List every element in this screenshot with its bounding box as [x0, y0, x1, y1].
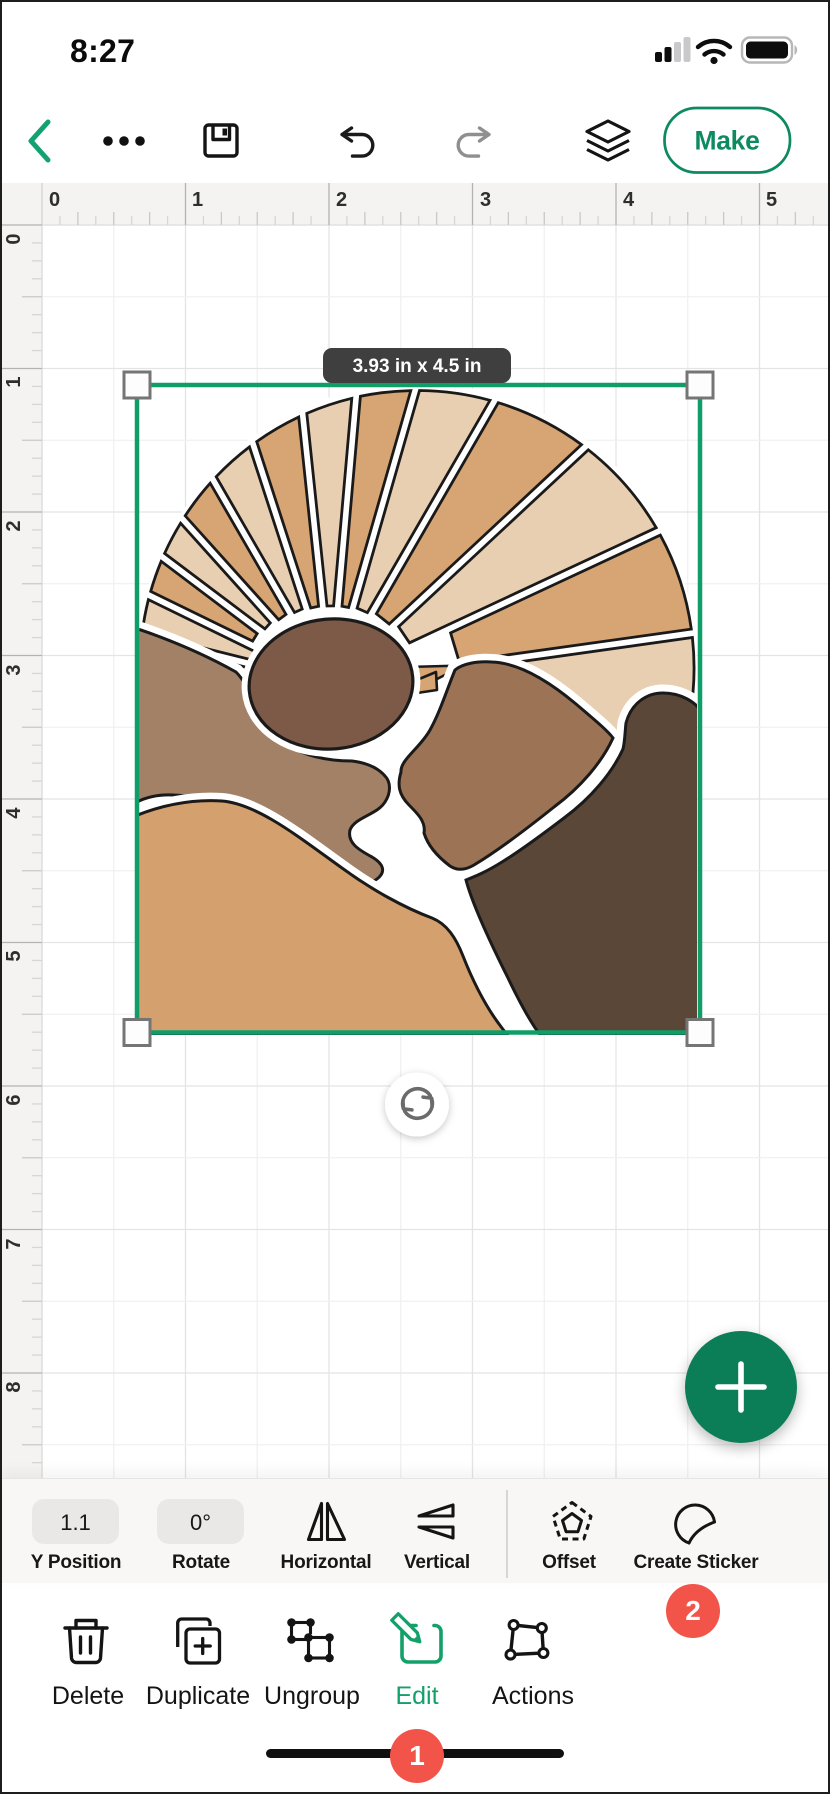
- svg-text:4: 4: [3, 807, 25, 819]
- svg-text:5: 5: [766, 189, 777, 211]
- svg-text:3: 3: [3, 664, 25, 675]
- svg-text:7: 7: [3, 1238, 25, 1249]
- svg-text:5: 5: [3, 950, 25, 961]
- svg-text:Make: Make: [694, 126, 759, 156]
- svg-text:6: 6: [3, 1094, 25, 1105]
- svg-text:3.93 in x 4.5 in: 3.93 in x 4.5 in: [353, 356, 482, 377]
- svg-text:1: 1: [192, 189, 203, 211]
- svg-text:1: 1: [3, 376, 25, 387]
- svg-text:2: 2: [336, 189, 347, 211]
- svg-text:4: 4: [623, 189, 635, 211]
- svg-text:2: 2: [3, 520, 25, 531]
- svg-text:0: 0: [3, 233, 25, 244]
- svg-text:0: 0: [49, 189, 60, 211]
- svg-text:3: 3: [480, 189, 491, 211]
- svg-text:8: 8: [3, 1381, 25, 1392]
